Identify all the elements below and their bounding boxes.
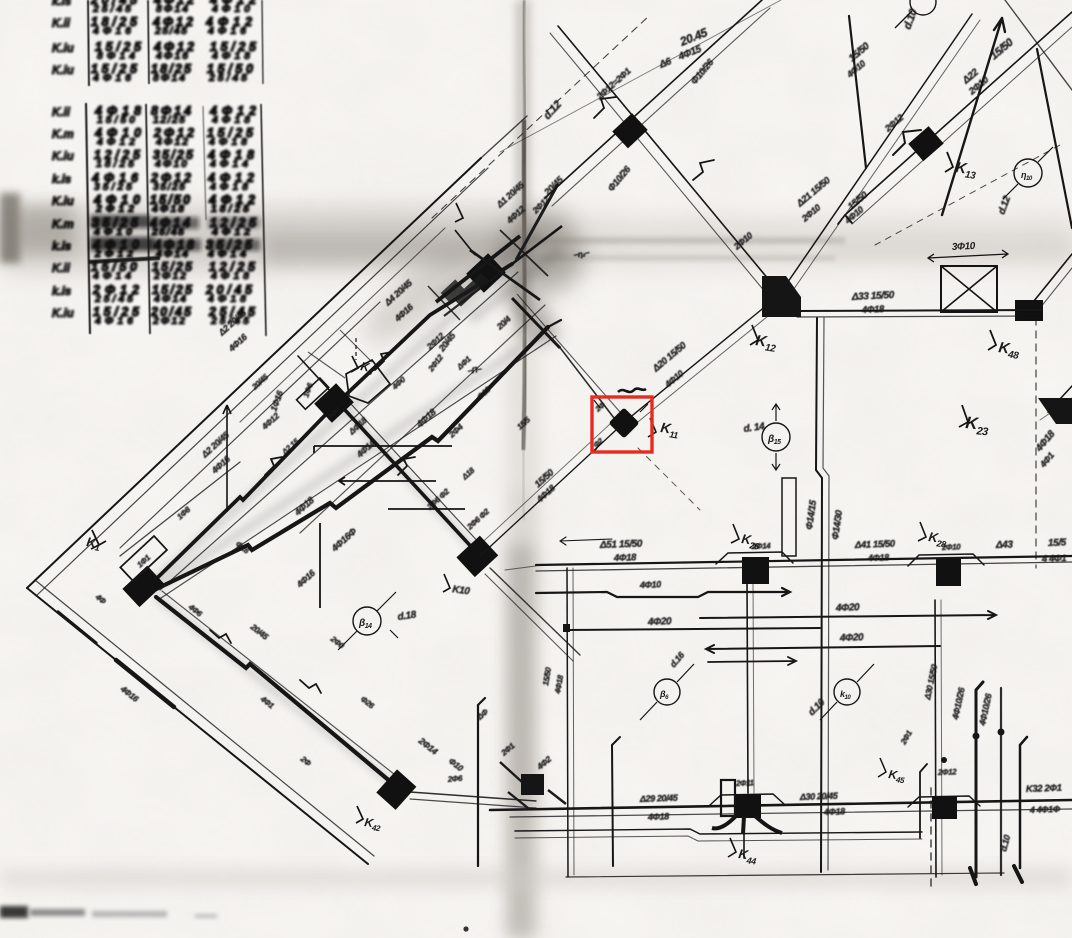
svg-text:2Φ11: 2Φ11 (735, 778, 755, 788)
svg-text:K.iu: K.iu (52, 308, 74, 320)
svg-text:4Φ14: 4Φ14 (153, 293, 186, 305)
svg-text:Δ43: Δ43 (995, 539, 1014, 551)
svg-text:4Φ18: 4Φ18 (151, 203, 184, 215)
svg-text:4Φ20: 4Φ20 (839, 632, 865, 644)
svg-text:K.iu: K.iu (52, 196, 74, 208)
svg-text:K.ii: K.ii (52, 18, 71, 30)
svg-text:25/45: 25/45 (154, 25, 187, 37)
svg-text:k.is: k.is (52, 241, 71, 253)
svg-text:12/25: 12/25 (153, 114, 185, 126)
svg-text:K.iu: K.iu (52, 43, 74, 55)
svg-text:8Φ14: 8Φ14 (153, 72, 185, 84)
svg-text:4 4Φ1Φ: 4 4Φ1Φ (1029, 804, 1061, 815)
svg-text:K.m: K.m (52, 219, 74, 231)
svg-text:4Φ12: 4Φ12 (155, 136, 188, 148)
svg-text:4Φ10: 4Φ10 (154, 158, 187, 170)
svg-text:Δ33 15/50: Δ33 15/50 (851, 290, 895, 303)
svg-text:k.is: k.is (52, 174, 71, 186)
svg-text:4Φ18: 4Φ18 (647, 811, 670, 822)
svg-text:4Φ20: 4Φ20 (647, 616, 673, 628)
svg-text:35/25: 35/25 (94, 181, 132, 193)
svg-text:15/5: 15/5 (1048, 537, 1067, 549)
svg-text:K32 2Φ1: K32 2Φ1 (1026, 783, 1062, 795)
svg-text:2Φ12: 2Φ12 (937, 767, 958, 777)
svg-text:Δ41 15/50: Δ41 15/50 (854, 539, 896, 551)
svg-text:2Φ12: 2Φ12 (152, 315, 185, 327)
svg-text:25/45: 25/45 (94, 293, 133, 305)
svg-text:4Φ18: 4Φ18 (867, 552, 890, 563)
svg-text:4Φ18: 4Φ18 (861, 304, 886, 316)
svg-text:15/50: 15/50 (97, 114, 135, 126)
svg-text:8Φ14: 8Φ14 (156, 3, 188, 15)
svg-text:2Φ12: 2Φ12 (153, 270, 186, 282)
svg-text:2Φ14: 2Φ14 (751, 541, 772, 551)
svg-text:4 4Φ1: 4 4Φ1 (1041, 553, 1067, 565)
svg-text:4Φ18: 4Φ18 (823, 806, 846, 817)
svg-text:4Φ18: 4Φ18 (613, 552, 638, 564)
svg-text:25/45: 25/45 (208, 72, 247, 84)
svg-text:Δ29 20/45: Δ29 20/45 (639, 793, 679, 804)
svg-text:Δ51 15/50: Δ51 15/50 (599, 539, 643, 552)
svg-text:18/25: 18/25 (211, 203, 249, 215)
svg-text:K.iu: K.iu (52, 65, 74, 77)
svg-text:k.is: k.is (52, 0, 71, 8)
svg-text:4Φ16: 4Φ16 (155, 50, 188, 62)
svg-text:4Φ10: 4Φ10 (639, 579, 662, 590)
svg-text:k.is: k.is (52, 286, 71, 298)
svg-text:18/25: 18/25 (96, 158, 134, 170)
svg-text:3Φ10: 3Φ10 (952, 241, 976, 253)
svg-text:Δ30 20/45: Δ30 20/45 (799, 791, 839, 802)
svg-text:2Φ6: 2Φ6 (446, 774, 463, 784)
svg-text:K.m: K.m (52, 129, 74, 141)
svg-text:K.ii: K.ii (52, 107, 71, 119)
svg-text:2Φ10: 2Φ10 (941, 542, 962, 552)
svg-text:4Φ20: 4Φ20 (835, 602, 861, 614)
svg-text:K.iu: K.iu (52, 151, 74, 163)
svg-text:K.ii: K.ii (52, 263, 71, 275)
svg-text:25/45: 25/45 (92, 3, 131, 15)
svg-text:35/25: 35/25 (153, 181, 185, 193)
